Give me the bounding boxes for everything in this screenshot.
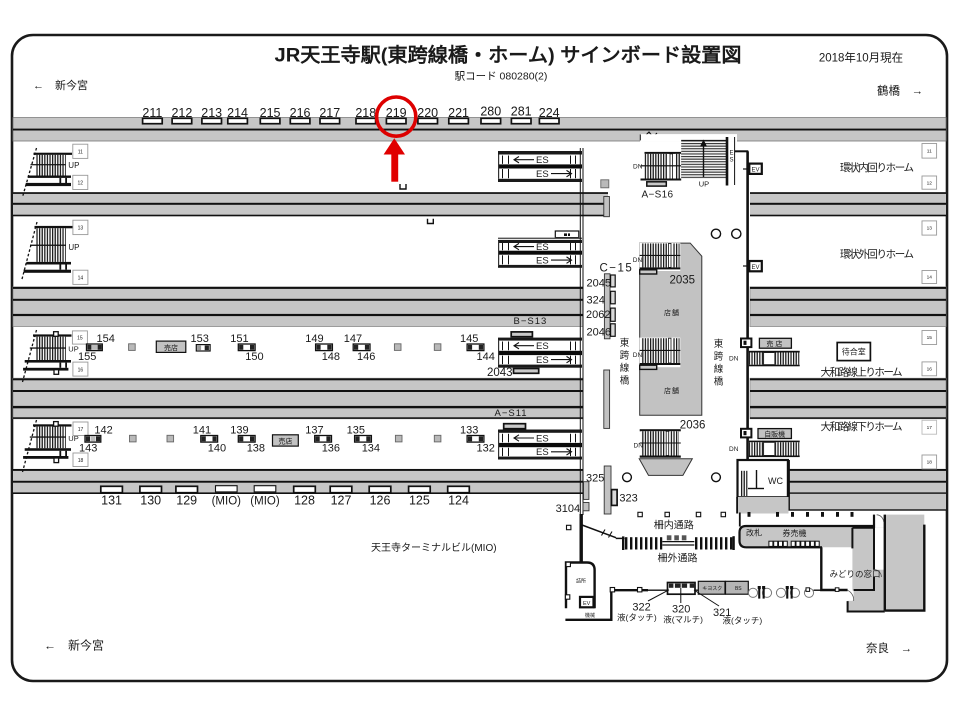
- svg-text:132: 132: [477, 442, 495, 454]
- svg-text:跨: 跨: [620, 351, 630, 362]
- svg-text:東: 東: [714, 338, 724, 350]
- svg-text:ES: ES: [536, 447, 549, 458]
- svg-text:15: 15: [77, 336, 83, 342]
- svg-text:134: 134: [362, 442, 380, 454]
- svg-text:154: 154: [97, 333, 115, 345]
- svg-text:JR天王寺駅(東跨線橋・ホーム) サインボード設置図: JR天王寺駅(東跨線橋・ホーム) サインボード設置図: [275, 44, 742, 67]
- svg-text:151: 151: [230, 333, 248, 345]
- svg-text:液(タッチ): 液(タッチ): [723, 616, 763, 626]
- svg-text:柵内通路: 柵内通路: [654, 518, 694, 531]
- svg-text:B−S13: B−S13: [514, 316, 548, 327]
- svg-text:機械: 機械: [585, 612, 595, 619]
- svg-text:136: 136: [322, 442, 340, 454]
- svg-text:16: 16: [78, 367, 84, 373]
- svg-text:みどりの窓口: みどりの窓口: [830, 569, 881, 579]
- svg-text:140: 140: [208, 442, 226, 454]
- svg-text:ES: ES: [536, 341, 549, 352]
- svg-text:DN: DN: [633, 163, 643, 170]
- svg-text:キヨスク: キヨスク: [702, 586, 722, 592]
- svg-text:ES: ES: [536, 169, 549, 180]
- svg-text:DN: DN: [633, 257, 643, 264]
- svg-text:奈良 →: 奈良 →: [866, 641, 912, 655]
- svg-text:EV: EV: [751, 265, 759, 271]
- svg-text:線: 線: [714, 363, 724, 375]
- svg-text:売店: 売店: [766, 339, 784, 348]
- svg-text:← 新今宮: ← 新今宮: [44, 638, 104, 653]
- svg-text:323: 323: [619, 492, 637, 504]
- svg-text:211: 211: [142, 106, 162, 120]
- svg-text:11: 11: [927, 149, 932, 155]
- svg-text:142: 142: [94, 424, 112, 436]
- svg-text:ES: ES: [536, 155, 549, 166]
- svg-text:153: 153: [191, 333, 209, 345]
- svg-text:221: 221: [448, 106, 469, 120]
- svg-text:213: 213: [201, 106, 222, 120]
- svg-text:145: 145: [460, 333, 478, 345]
- svg-text:大和路線上りホーム: 大和路線上りホーム: [821, 366, 903, 379]
- svg-text:BS: BS: [735, 586, 742, 592]
- svg-text:224: 224: [539, 106, 560, 120]
- svg-text:券売機: 券売機: [783, 528, 807, 538]
- svg-text:2035: 2035: [670, 275, 696, 287]
- svg-text:212: 212: [171, 106, 192, 120]
- svg-text:柵外通路: 柵外通路: [658, 552, 698, 565]
- svg-text:14: 14: [78, 276, 84, 282]
- svg-text:ES: ES: [536, 255, 549, 266]
- svg-text:2043: 2043: [487, 367, 513, 379]
- svg-text:UP: UP: [699, 180, 709, 189]
- svg-text:128: 128: [294, 494, 315, 508]
- svg-text:2018年10月現在: 2018年10月現在: [819, 51, 903, 65]
- svg-text:C−15: C−15: [600, 263, 634, 275]
- svg-text:大和路線下りホーム: 大和路線下りホーム: [821, 420, 903, 433]
- svg-text:218: 218: [355, 106, 376, 120]
- svg-text:改札: 改札: [746, 528, 762, 538]
- svg-text:18: 18: [78, 458, 84, 464]
- svg-text:S: S: [730, 158, 734, 164]
- svg-text:13: 13: [78, 226, 84, 232]
- svg-text:17: 17: [78, 427, 84, 433]
- svg-text:ES: ES: [536, 355, 549, 366]
- svg-text:147: 147: [344, 333, 362, 345]
- svg-text:16: 16: [927, 367, 933, 373]
- svg-text:UP: UP: [68, 243, 79, 252]
- svg-text:215: 215: [260, 106, 281, 120]
- svg-text:281: 281: [511, 105, 532, 119]
- svg-text:127: 127: [331, 494, 352, 508]
- svg-text:環状内回りホーム: 環状内回りホーム: [840, 161, 914, 174]
- svg-text:液(マルチ): 液(マルチ): [663, 615, 703, 625]
- svg-text:149: 149: [305, 333, 323, 345]
- svg-text:東: 東: [620, 337, 630, 349]
- svg-text:14: 14: [927, 275, 933, 281]
- svg-text:220: 220: [417, 106, 438, 120]
- svg-text:(MIO): (MIO): [250, 496, 280, 508]
- svg-text:2046: 2046: [587, 327, 611, 339]
- svg-text:139: 139: [230, 424, 248, 436]
- svg-text:217: 217: [319, 106, 340, 120]
- svg-text:A−S16: A−S16: [642, 190, 674, 201]
- svg-text:148: 148: [322, 351, 340, 363]
- svg-text:液(タッチ): 液(タッチ): [617, 613, 657, 623]
- svg-text:E: E: [730, 151, 734, 157]
- svg-text:216: 216: [290, 106, 311, 120]
- svg-text:11: 11: [78, 150, 83, 156]
- svg-text:2036: 2036: [680, 419, 706, 431]
- svg-text:店舗: 店舗: [664, 386, 680, 395]
- svg-text:詰所: 詰所: [576, 578, 586, 585]
- svg-text:214: 214: [227, 106, 248, 120]
- svg-text:125: 125: [409, 494, 430, 508]
- svg-text:324: 324: [587, 295, 605, 307]
- svg-text:130: 130: [140, 494, 161, 508]
- svg-text:自販機: 自販機: [764, 429, 785, 438]
- svg-text:126: 126: [370, 494, 391, 508]
- svg-text:DN: DN: [729, 446, 739, 453]
- svg-text:鶴橋 →: 鶴橋 →: [877, 84, 923, 98]
- svg-text:天王寺ターミナルビル(MIO): 天王寺ターミナルビル(MIO): [371, 542, 497, 554]
- svg-text:12: 12: [78, 181, 84, 187]
- svg-text:跨: 跨: [714, 352, 724, 363]
- svg-text:15: 15: [927, 335, 933, 341]
- svg-text:2062: 2062: [586, 309, 610, 321]
- svg-text:(MIO): (MIO): [212, 496, 242, 508]
- svg-text:店舗: 店舗: [664, 308, 680, 317]
- svg-text:ES: ES: [536, 433, 549, 444]
- svg-text:17: 17: [927, 425, 933, 431]
- svg-text:EV: EV: [583, 601, 591, 607]
- svg-text:155: 155: [78, 351, 96, 363]
- svg-text:DN: DN: [634, 442, 644, 449]
- svg-text:売店: 売店: [278, 436, 292, 445]
- svg-text:DN: DN: [729, 355, 739, 362]
- svg-text:線: 線: [620, 362, 630, 374]
- svg-text:EV: EV: [751, 168, 759, 174]
- svg-text:18: 18: [927, 460, 933, 466]
- svg-text:WC: WC: [768, 476, 783, 486]
- svg-text:219: 219: [386, 106, 407, 120]
- svg-text:3104: 3104: [556, 503, 580, 515]
- svg-text:橋: 橋: [714, 376, 724, 388]
- svg-text:144: 144: [477, 351, 495, 363]
- svg-text:DN: DN: [633, 352, 643, 359]
- svg-text:2045: 2045: [587, 277, 611, 289]
- svg-text:A−S11: A−S11: [495, 408, 528, 419]
- svg-text:124: 124: [448, 494, 469, 508]
- svg-text:280: 280: [480, 105, 501, 119]
- svg-text:駅コード 080280(2): 駅コード 080280(2): [455, 71, 548, 83]
- svg-text:← 新今宮: ← 新今宮: [33, 78, 88, 92]
- svg-text:131: 131: [101, 494, 122, 508]
- svg-text:138: 138: [247, 442, 265, 454]
- svg-text:待合室: 待合室: [842, 347, 866, 357]
- svg-text:150: 150: [245, 351, 263, 363]
- svg-text:135: 135: [347, 424, 365, 436]
- svg-text:143: 143: [79, 442, 97, 454]
- svg-text:12: 12: [927, 180, 933, 186]
- svg-text:141: 141: [193, 424, 211, 436]
- svg-text:売店: 売店: [164, 343, 178, 352]
- svg-text:146: 146: [357, 351, 375, 363]
- svg-text:UP: UP: [68, 161, 79, 170]
- svg-text:133: 133: [460, 424, 478, 436]
- svg-text:13: 13: [927, 226, 933, 232]
- svg-text:環状外回りホーム: 環状外回りホーム: [840, 247, 914, 260]
- svg-text:橋: 橋: [620, 375, 630, 387]
- svg-text:137: 137: [305, 424, 323, 436]
- svg-text:ES: ES: [536, 242, 549, 253]
- svg-text:129: 129: [176, 494, 197, 508]
